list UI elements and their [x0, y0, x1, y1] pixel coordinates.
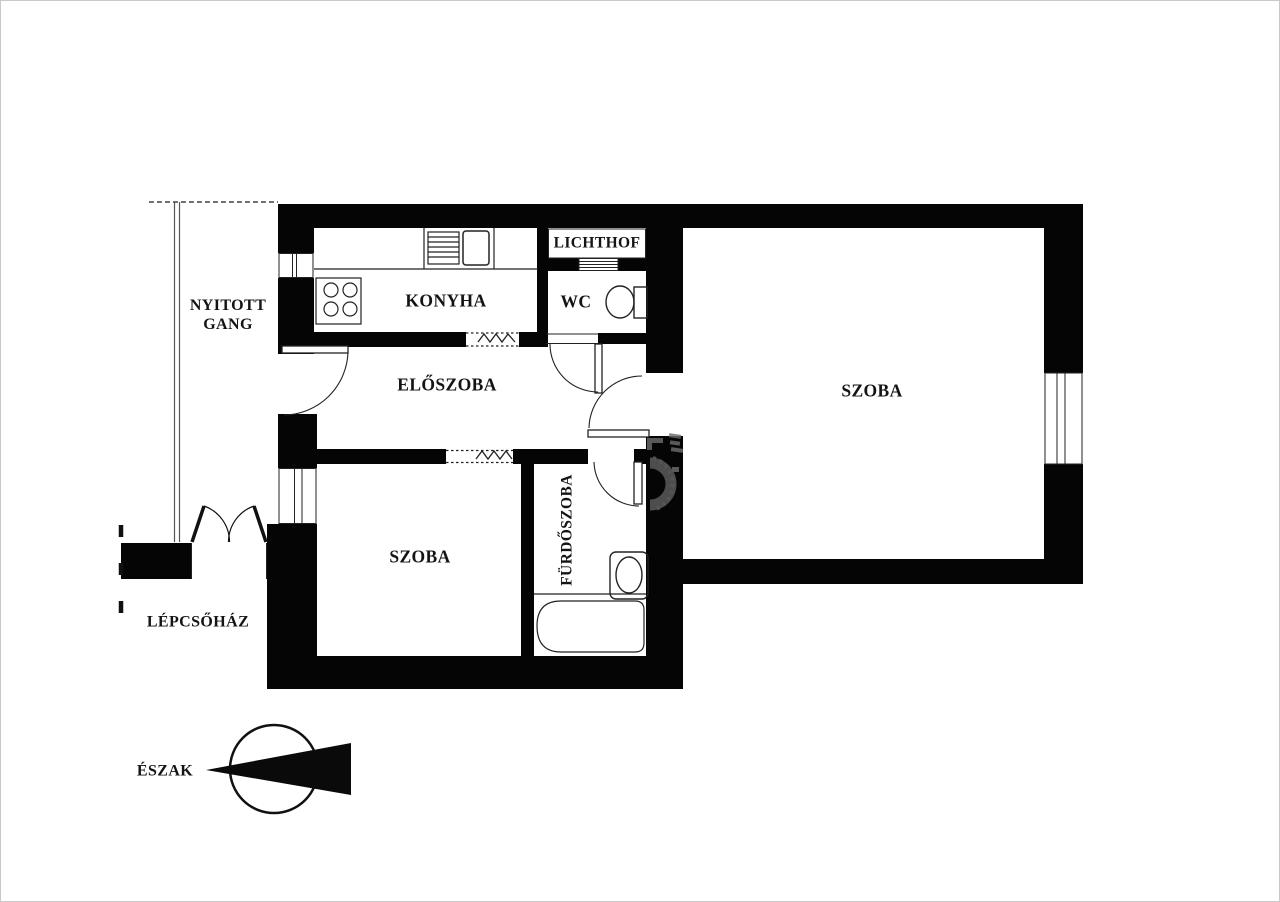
zigzag-openings — [446, 333, 519, 463]
wall-hall-divider-upper — [646, 228, 683, 373]
kitchen-sink-icon — [424, 228, 494, 269]
label-nyitott-gang: NYITOTT GANG — [190, 296, 266, 334]
radiator-zigzag-icon-room — [446, 451, 513, 463]
compass — [206, 725, 351, 813]
wall-bottom-right — [646, 559, 1083, 584]
label-furdoszoba: FÜRDŐSZOBA — [558, 474, 577, 586]
label-konyha: KONYHA — [405, 292, 486, 311]
wall-staircase — [121, 543, 191, 579]
label-wc: WC — [561, 293, 592, 312]
wall-left-a — [278, 228, 314, 253]
kitchen-window-icon — [279, 254, 313, 278]
wall-layer — [121, 204, 1083, 689]
floor-plan: NYITOTT GANG KONYHA LICHTHOF WC ELŐSZOBA… — [0, 0, 1280, 902]
wall-left-b — [278, 278, 314, 354]
wall-bottom-left — [267, 656, 683, 689]
stove-icon — [316, 278, 361, 324]
north-arrow-icon — [206, 743, 351, 795]
label-szoba-right: SZOBA — [841, 382, 902, 401]
label-nyitott-gang-line2: GANG — [190, 315, 266, 334]
entry-door — [282, 346, 348, 415]
lichthof-vent-icon — [579, 259, 618, 271]
wall-right-b — [1044, 464, 1083, 584]
label-eszak: ÉSZAK — [137, 762, 193, 781]
room-left-window-icon — [279, 469, 316, 524]
toilet-icon — [606, 286, 647, 318]
wall-lichthof-sill-a — [548, 258, 579, 271]
wall-wc-south — [598, 333, 646, 344]
radiator-zigzag-icon-kitchen — [466, 333, 519, 346]
window-layer — [192, 229, 1083, 579]
door-layer — [192, 343, 649, 542]
wall-right-a — [1044, 228, 1083, 373]
wall-kitchen-south-a — [314, 332, 466, 347]
wc-door-threshold — [546, 334, 598, 344]
label-nyitott-gang-line1: NYITOTT — [190, 296, 266, 315]
bathtub-icon — [534, 594, 646, 652]
staircase-door-frame — [192, 543, 267, 579]
label-szoba-left: SZOBA — [389, 548, 450, 567]
wall-corner-block — [267, 524, 317, 658]
bathroom-door — [594, 462, 642, 506]
wall-bath-left — [521, 451, 534, 656]
wall-left-stub — [278, 414, 317, 468]
wall-kitchen-wc-divider — [537, 228, 548, 347]
wall-top — [278, 204, 1083, 228]
washbasin-icon — [610, 552, 648, 599]
label-lichthof: LICHTHOF — [554, 234, 641, 253]
room-right-window-icon — [1045, 373, 1082, 464]
label-eloszoba: ELŐSZOBA — [397, 376, 496, 395]
staircase-double-door — [192, 506, 266, 542]
wc-door — [550, 343, 602, 393]
label-lepcsohaz: LÉPCSŐHÁZ — [147, 613, 249, 632]
wall-lichthof-sill-b — [618, 258, 646, 271]
wall-hall-south — [317, 449, 446, 464]
